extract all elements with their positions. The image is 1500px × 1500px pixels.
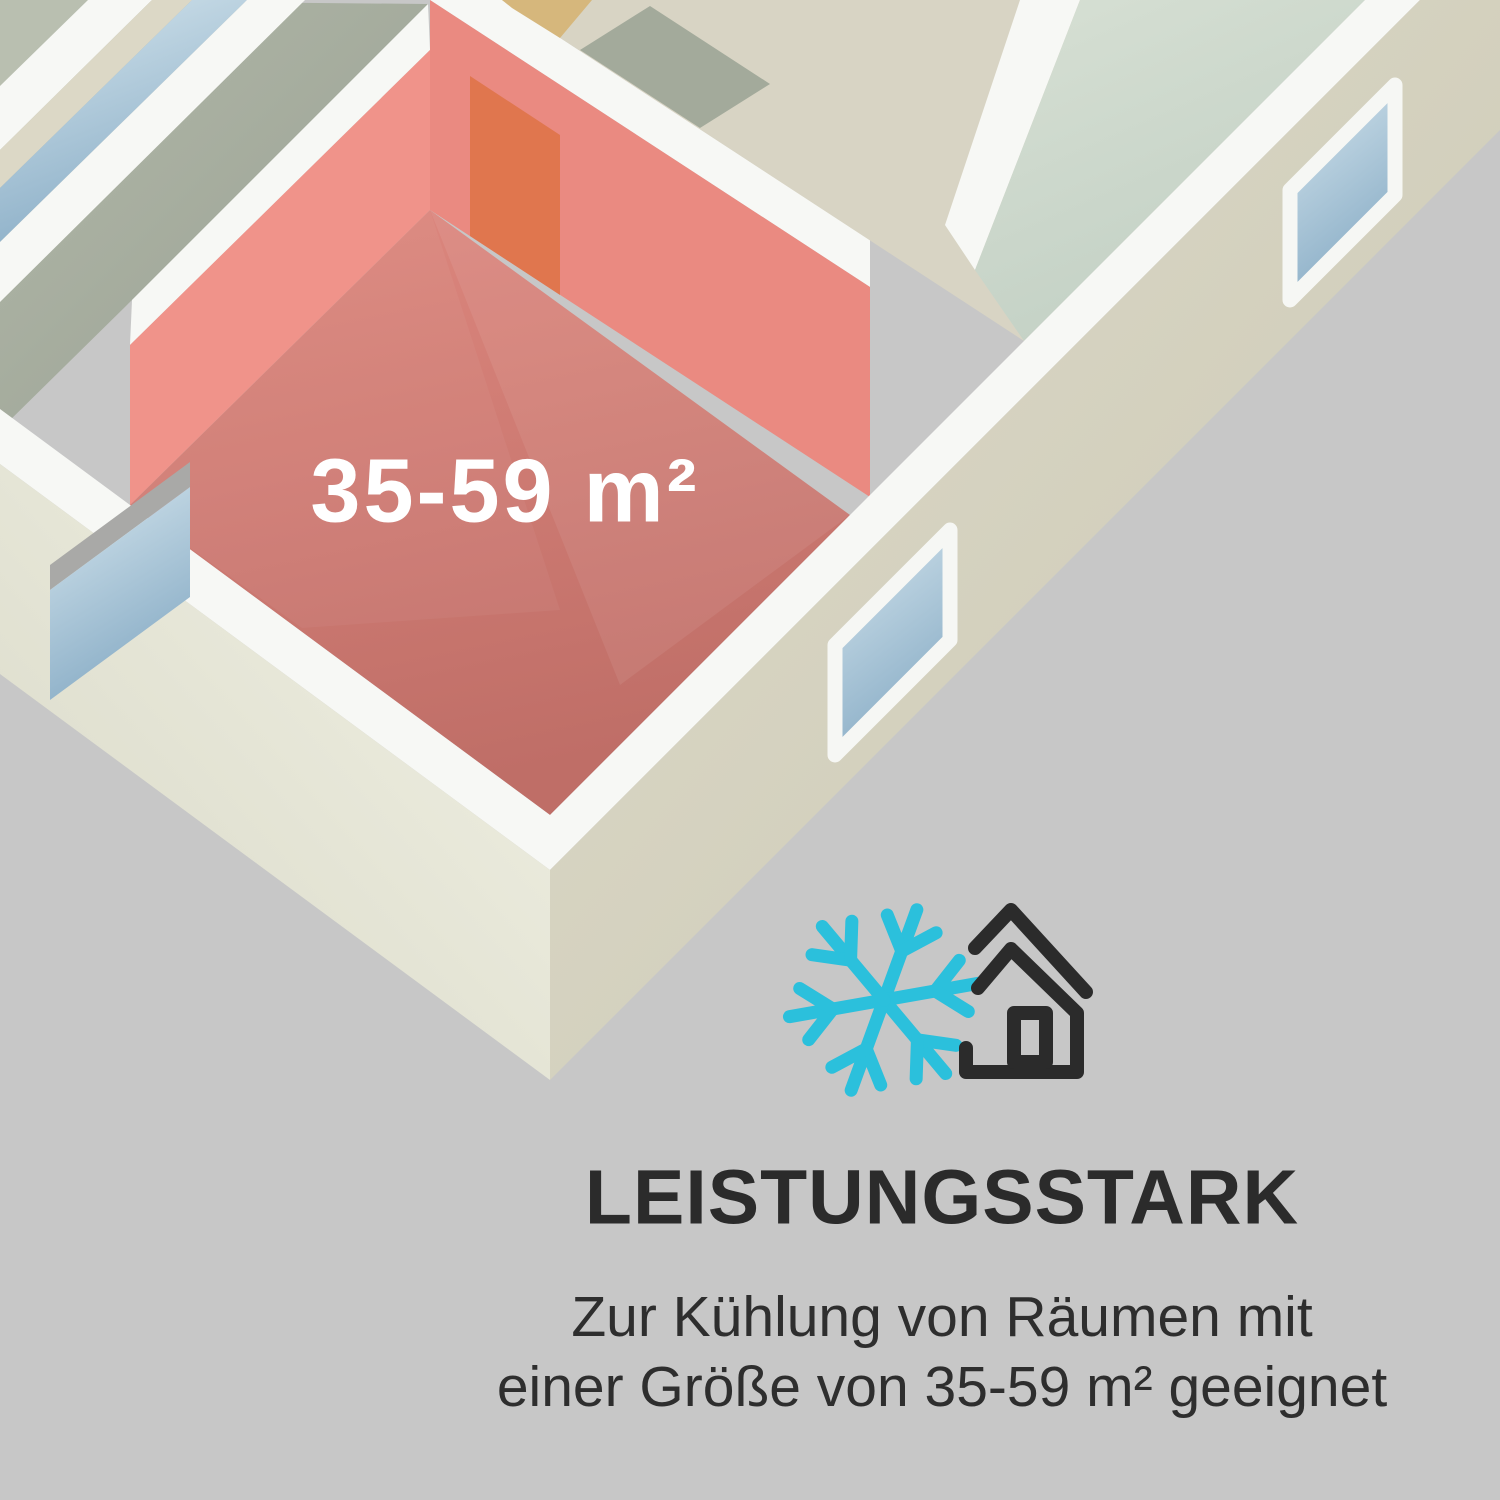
room-size-label: 35-59 m² <box>310 441 699 544</box>
marketing-graphic: 35-59 m² LEISTUNGSSTARK Zur Kühlung von … <box>0 0 1500 1500</box>
subtext-line-1: Zur Kühlung von Räumen mit <box>571 1284 1312 1350</box>
headline: LEISTUNGSSTARK <box>585 1154 1299 1243</box>
floorplan-illustration <box>0 0 1500 1500</box>
subtext-line-2: einer Größe von 35-59 m² geeignet <box>497 1354 1387 1420</box>
